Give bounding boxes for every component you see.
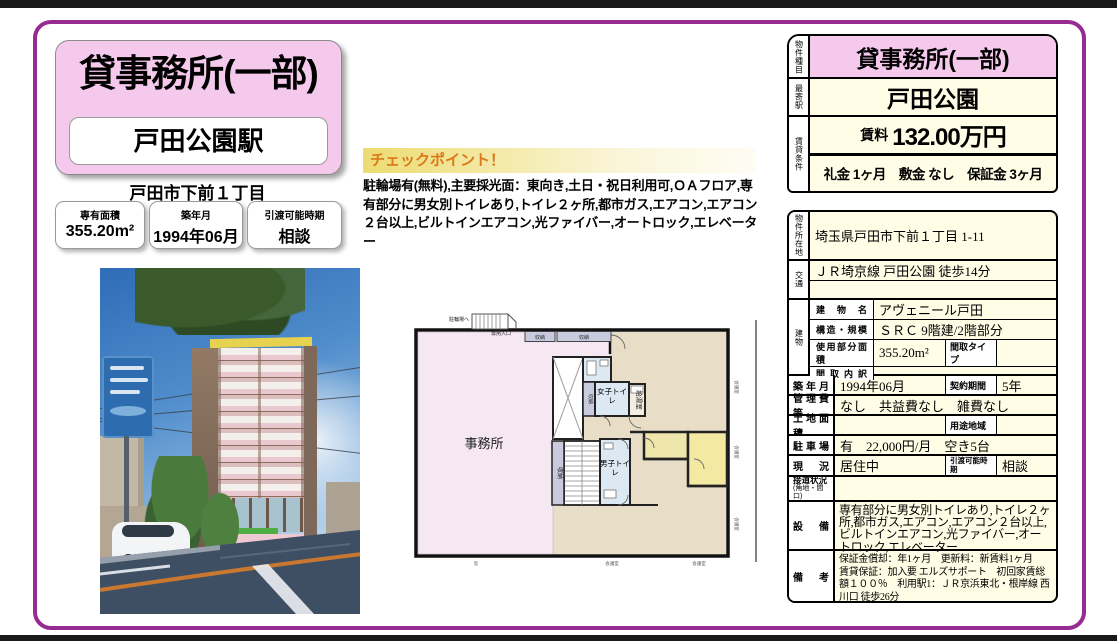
location-value: 埼玉県戸田市下前１丁目 1-11 — [810, 212, 1056, 259]
summary-terms-label-cell: 賃貸条件 — [789, 117, 810, 191]
tiny-label: 会議室 — [733, 445, 740, 459]
stat-handover-label: 引渡可能時期 — [248, 207, 341, 222]
handover-value: 相談 — [997, 456, 1056, 475]
stat-area-value: 355.20m² — [56, 223, 144, 241]
equipment-value: 専有部分に男女別トイレあり,トイレ２ヶ所,都市ガス,エアコン,エアコン２台以上,… — [835, 502, 1056, 549]
mens-toilet-label: 男子トイレ — [600, 460, 630, 477]
stat-built-label: 築年月 — [150, 207, 242, 222]
location-label-cell: 物件所在地 — [789, 212, 810, 259]
land-value — [835, 416, 945, 434]
stat-handover-value: 相談 — [248, 223, 341, 247]
tiny-label: 会議室 — [605, 560, 619, 567]
tiny-label: 会議室 — [692, 560, 706, 567]
tiny-label: 会議室 — [733, 517, 740, 531]
zoning-value — [997, 416, 1056, 434]
storage-label: 収納 — [579, 334, 589, 341]
property-detail-table: 物件所在地 埼玉県戸田市下前１丁目 1-11 交通 ＪＲ埼京線 戸田公園 徒歩1… — [787, 210, 1058, 603]
summary-type-label-cell: 物件種目 — [789, 36, 810, 77]
checkpoint-header: チェックポイント！ — [363, 148, 756, 173]
status-label: 現況 — [789, 456, 835, 475]
fees-value: なし 共益費なし 雑費なし — [835, 396, 1056, 414]
property-title-box: 貸事務所(一部) 戸田公園駅 — [55, 40, 342, 175]
checkpoint-body: 駐輪場有(無料),主要採光面：東向き,土日・祝日利用可,ＯＡフロア,専有部分に男… — [363, 177, 764, 252]
tiny-label: 窓 — [474, 560, 479, 566]
photo-road — [100, 524, 360, 614]
road-label-sub: (角地・間口) — [793, 485, 829, 500]
status-value: 居住中 — [835, 456, 945, 475]
office-label: 事務所 — [464, 436, 503, 451]
zoning-label: 用途地域 — [945, 416, 997, 434]
road-value — [835, 477, 1056, 500]
notes-value: 保証金償却：年1ヶ月 更新料：新賃料1ヶ月 賃貸保証：加入要 エルズサポート 初… — [835, 551, 1056, 601]
summary-rent-cell: 賃料 132.00万円 — [810, 117, 1056, 153]
summary-station-label-cell: 最寄駅 — [789, 79, 810, 115]
building-front-face — [218, 348, 304, 498]
stat-area: 専有面積 355.20m² — [55, 201, 145, 249]
structure-value: ＳＲＣ 9階建/2階部分 — [874, 320, 1056, 339]
road-label-cell: 接道状況 (角地・間口) — [789, 477, 835, 500]
access-label-cell: 交通 — [789, 261, 810, 298]
used-area-label: 使用部分面積 — [810, 340, 874, 366]
stat-built-value: 1994年06月 — [150, 223, 242, 247]
contract-label: 契約期間 — [945, 376, 997, 394]
madori-type-value — [997, 340, 1056, 366]
equipment-label: 設備 — [789, 502, 835, 549]
summary-type-value: 貸事務所(一部) — [810, 36, 1056, 77]
kitchenette-label: 給湯室 — [635, 390, 644, 410]
used-area-value: 355.20m² — [874, 340, 945, 366]
storage-label: 収納 — [535, 334, 545, 341]
building-name-label: 建物名 — [810, 300, 874, 319]
building-name-value: アヴェニール戸田 — [874, 300, 1056, 319]
summary-table: 物件種目 貸事務所(一部) 最寄駅 戸田公園 賃貸条件 賃料 132.00万円 … — [787, 34, 1058, 193]
madori-type-label: 間取タイプ — [945, 340, 997, 366]
handover-label: 引渡可能時期 — [945, 456, 997, 475]
bottom-black-bar — [0, 635, 1117, 641]
rent-value: 132.00万円 — [892, 117, 1005, 152]
access-value: ＪＲ埼京線 戸田公園 徒歩14分 — [810, 261, 1056, 280]
parking-label: 駐車場 — [789, 436, 835, 454]
station-name-box: 戸田公園駅 — [69, 117, 328, 165]
storage-label: 収納 — [587, 394, 594, 404]
entrance-note: 専用入口 — [491, 330, 511, 337]
photo-tree-top — [135, 268, 305, 335]
contract-value: 5年 — [997, 376, 1056, 394]
floorplan: 事務所 女子トイレ 男子トイレ 給湯室 収納 収納 収納 収納 駐輪場へ 専用入… — [404, 292, 766, 584]
structure-label: 構造・規模 — [810, 320, 874, 339]
storage-label: 収納 — [556, 467, 564, 479]
building-label-cell: 建物 — [789, 300, 810, 374]
flyer-page: 貸事務所(一部) 戸田公園駅 戸田市下前１丁目 専有面積 355.20m² 築年… — [0, 0, 1117, 641]
property-type-title: 貸事務所(一部) — [56, 43, 341, 97]
summary-initial-fees: 礼金 1ヶ月 敷金 なし 保証金 3ヶ月 — [810, 156, 1056, 192]
stat-built: 築年月 1994年06月 — [149, 201, 243, 249]
land-label: 土地面積 — [789, 416, 835, 434]
notes-label: 備考 — [789, 551, 835, 601]
tiny-label: 会議室 — [733, 380, 740, 394]
bike-parking-note: 駐輪場へ — [449, 316, 469, 323]
road-sign — [102, 356, 154, 438]
built-value: 1994年06月 — [835, 376, 945, 394]
stat-handover: 引渡可能時期 相談 — [247, 201, 342, 249]
stat-area-label: 専有面積 — [56, 207, 144, 222]
womens-toilet-label: 女子トイレ — [594, 388, 630, 405]
top-black-bar — [0, 0, 1117, 8]
parking-value: 有 22,000円/月 空き5台 — [835, 436, 1056, 454]
rent-label: 賃料 — [860, 125, 888, 145]
building-photo — [100, 268, 360, 614]
access-value-2 — [810, 281, 1056, 298]
summary-station-value: 戸田公園 — [810, 79, 1056, 115]
